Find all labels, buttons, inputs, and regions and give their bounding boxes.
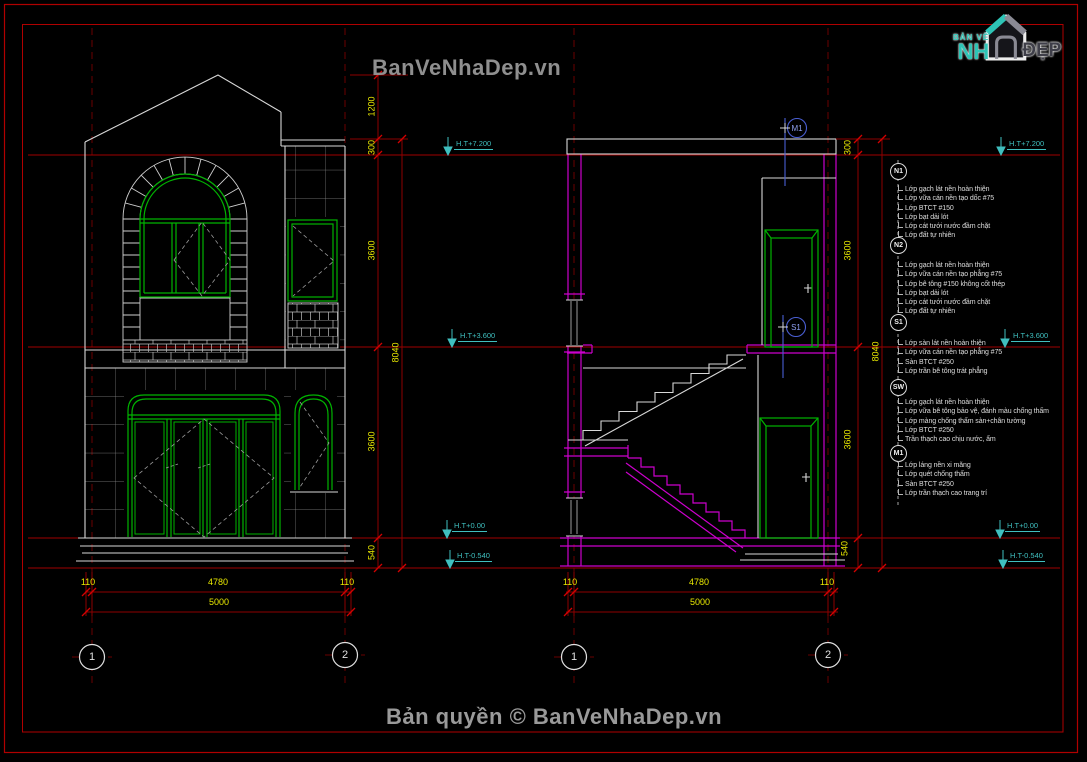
note-line: Lớp gạch lát nền hoàn thiện [898,261,1005,270]
note-line: Lớp cát tưới nước đầm chặt [898,222,994,231]
note-line: Lớp vữa bê tông bảo vệ, đánh màu chống t… [898,407,1049,416]
logo-dep: ĐẸP [1022,42,1061,60]
section-drawing [560,118,845,566]
note-line: Lớp BTCT #150 [898,204,994,213]
callout-leaders [783,118,807,378]
note-bubble-sw: SW [890,379,907,396]
note-line: Lớp đất tự nhiên [898,307,1005,316]
copyright-text: Bản quyền © BanVeNhaDep.vn [386,704,722,730]
sec-dim-4780: 4780 [677,577,721,588]
note-line: Lớp vữa cán nền tạo phẳng #75 [898,348,1002,357]
sec-dim-110-left: 110 [548,577,592,588]
axis-1-elevation: 1 [79,651,105,664]
note-bubble-m1: M1 [890,445,907,462]
level-7200-left: H.T+7.200 [454,139,493,150]
sec-dim-8040: 8040 [871,330,882,374]
note-line: Lớp đất tự nhiên [898,231,994,240]
callout-s1: S1 [785,323,807,332]
note-line: Lớp láng nền xi măng [898,461,987,470]
callout-m1: M1 [786,124,808,133]
dim-3600-lower: 3600 [367,420,378,464]
dim-3600-upper: 3600 [367,229,378,273]
note-line: Lớp bạt dải lót [898,213,994,222]
note-list-sw: Lớp gạch lát nền hoàn thiệnLớp vữa bê tô… [898,398,1049,444]
note-line: Lớp bạt dải lót [898,289,1005,298]
note-line: Lớp sàn lát nền hoàn thiện [898,339,1002,348]
note-line: Lớp quét chống thấm [898,470,987,479]
note-line: Lớp vữa cán nền tạo phẳng #75 [898,270,1005,279]
site-logo: BẢN VẼ NH ĐẸP [953,12,1061,62]
dim-110-left: 110 [66,577,110,588]
sec-dim-300: 300 [843,126,854,170]
note-line: Lớp gạch lát nền hoàn thiện [898,185,994,194]
note-line: Lớp trần bê tông trát phẳng [898,367,1002,376]
note-bubble-n1: N1 [890,163,907,180]
note-list-n1: Lớp gạch lát nền hoàn thiệnLớp vữa cán n… [898,185,994,241]
note-line: Sàn BTCT #250 [898,480,987,489]
level-3600-left: H.T+3.600 [458,331,497,342]
note-line: Trần thạch cao chịu nước, ẩm [898,435,1049,444]
cad-linework [0,0,1087,762]
axis-2-section: 2 [815,649,841,662]
note-list-m1: Lớp láng nền xi măngLớp quét chống thấmS… [898,461,987,498]
level-000-left: H.T+0.00 [452,521,487,532]
sec-dim-110-right: 110 [805,577,849,588]
dim-4780: 4780 [196,577,240,588]
level-m540-right: H.T-0.540 [1008,551,1045,562]
note-line: Lớp vữa cán nền tạo dốc #75 [898,194,994,203]
note-line: Lớp bê tông #150 không cốt thép [898,280,1005,289]
sec-dim-3600-lower: 3600 [843,418,854,462]
logo-nh: NH [957,42,989,62]
dim-8040: 8040 [391,331,402,375]
dim-300: 300 [367,126,378,170]
watermark-top: BanVeNhaDep.vn [372,55,561,81]
level-000-right: H.T+0.00 [1005,521,1040,532]
note-line: Sàn BTCT #250 [898,358,1002,367]
dim-540: 540 [367,531,378,575]
note-line: Lớp gạch lát nền hoàn thiện [898,398,1049,407]
note-line: Lớp trần thạch cao trang trí [898,489,987,498]
dim-1200: 1200 [367,85,378,129]
note-list-s1: Lớp sàn lát nền hoàn thiệnLớp vữa cán nề… [898,339,1002,376]
note-bubble-n2: N2 [890,237,907,254]
note-line: Lớp BTCT #250 [898,426,1049,435]
dim-110-right: 110 [325,577,369,588]
note-bubble-s1: S1 [890,314,907,331]
drawing-sheet: BanVeNhaDep.vn Bản quyền © BanVeNhaDep.v… [0,0,1087,762]
note-list-n2: Lớp gạch lát nền hoàn thiệnLớp vữa cán n… [898,261,1005,317]
note-line: Lớp màng chống thấm sàn+chân tường [898,417,1049,426]
sec-dim-3600-upper: 3600 [843,229,854,273]
note-line: Lớp cát tưới nước đầm chặt [898,298,1005,307]
sec-dim-5000: 5000 [678,597,722,608]
sec-dim-540: 540 [840,527,851,571]
level-m540-left: H.T-0.540 [455,551,492,562]
axis-1-section: 1 [561,651,587,664]
front-elevation [76,75,354,561]
level-3600-right: H.T+3.600 [1011,331,1050,342]
axis-bubbles [80,643,841,670]
dim-5000: 5000 [197,597,241,608]
axis-2-elevation: 2 [332,649,358,662]
level-7200-right: H.T+7.200 [1007,139,1046,150]
